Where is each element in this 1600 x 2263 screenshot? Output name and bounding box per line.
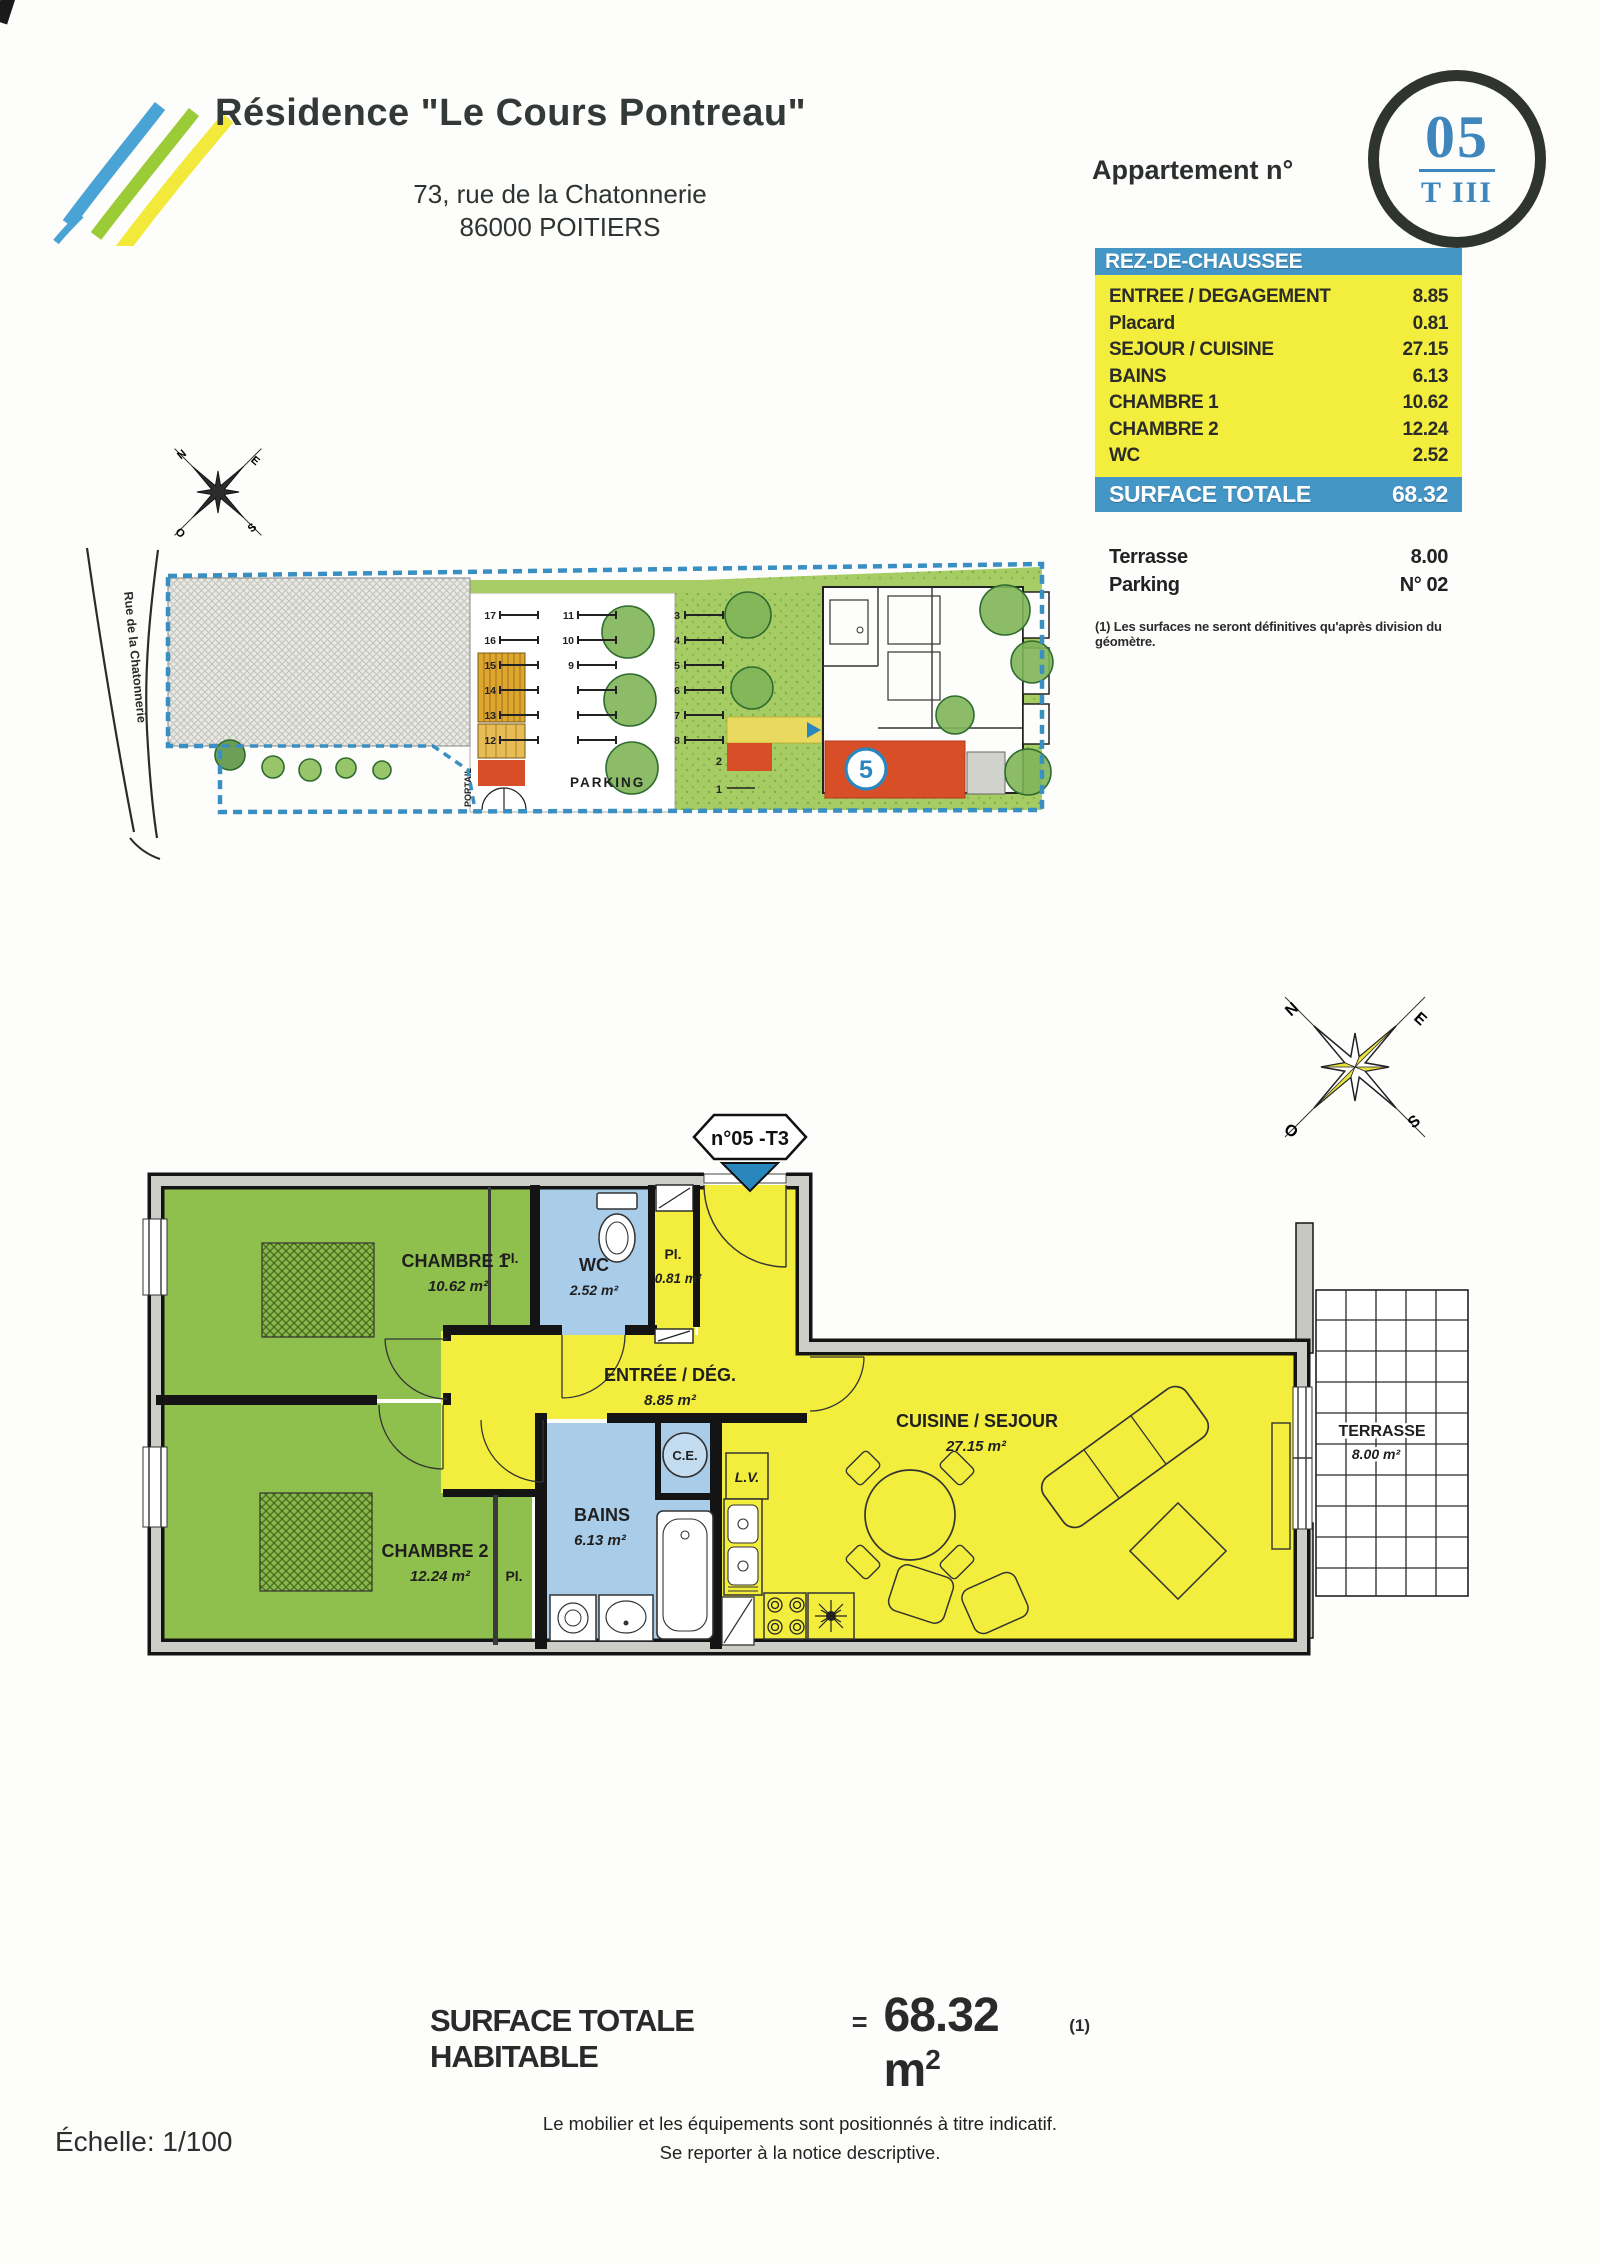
floor-header: REZ-DE-CHAUSSEE xyxy=(1095,248,1462,275)
row-label: WC xyxy=(1109,445,1140,467)
unit5-marker: 5 xyxy=(846,749,886,789)
parking-number: 13 xyxy=(484,710,496,722)
developer-logo xyxy=(48,46,268,246)
row-value: 12.24 xyxy=(1402,419,1448,441)
unit5-number: 5 xyxy=(859,756,873,784)
bed-icon-chambre2 xyxy=(260,1493,372,1591)
summary-equals: = xyxy=(852,2007,868,2038)
row-label: Placard xyxy=(1109,313,1175,335)
table-row: Terrasse8.00 xyxy=(1109,543,1448,571)
parking-label: PARKING xyxy=(570,775,645,790)
scan-artifact xyxy=(0,0,16,24)
annex-rows: Terrasse8.00 ParkingN° 02 xyxy=(1095,543,1462,599)
unit-tag-text: n°05 -T3 xyxy=(711,1128,789,1150)
row-value: 2.52 xyxy=(1413,445,1448,467)
parking-number: 5 xyxy=(674,660,680,672)
label-dishwasher: L.V. xyxy=(735,1469,759,1485)
room-entree-pocket xyxy=(441,1331,540,1493)
street: Rue de la Chatonnerie xyxy=(87,548,160,859)
parking-number: 4 xyxy=(674,635,680,647)
parking-number: 6 xyxy=(674,685,680,697)
parking-number: 14 xyxy=(484,685,496,697)
gate-parking-number: 2 xyxy=(716,756,722,768)
surface-table-body: ENTREE / DEGAGEMENT8.85 Placard0.81 SEJO… xyxy=(1095,275,1462,477)
compass-e: E xyxy=(1410,1009,1430,1029)
label-entree: ENTRÉE / DÉG. xyxy=(604,1364,736,1385)
row-value: 10.62 xyxy=(1402,392,1448,414)
compass-e: E xyxy=(248,454,261,468)
apartment-type: T III xyxy=(1421,176,1493,210)
table-row: ParkingN° 02 xyxy=(1109,571,1448,599)
row-value: N° 02 xyxy=(1400,574,1448,597)
terrace-unit2-west xyxy=(478,760,525,786)
parking-number: 7 xyxy=(674,710,680,722)
row-label: CHAMBRE 1 xyxy=(1109,392,1218,414)
table-row: Placard0.81 xyxy=(1109,311,1448,338)
terrace-unit2 xyxy=(727,743,772,771)
bathtub-icon xyxy=(657,1511,713,1639)
dining-table-icon xyxy=(845,1450,976,1581)
badge-divider xyxy=(1419,169,1495,172)
parking-number: 12 xyxy=(484,735,496,747)
area-bains: 6.13 m² xyxy=(574,1532,627,1549)
area-entree: 8.85 m² xyxy=(644,1392,697,1409)
area-wc: 2.52 m² xyxy=(569,1282,619,1298)
surface-table: REZ-DE-CHAUSSEE ENTREE / DEGAGEMENT8.85 … xyxy=(1095,248,1462,649)
residence-title: Résidence "Le Cours Pontreau" xyxy=(215,92,806,135)
table-row: BAINS6.13 xyxy=(1109,364,1448,391)
label-chambre2: CHAMBRE 2 xyxy=(381,1541,488,1561)
summary-value-number: 68.32 m xyxy=(884,1989,999,2097)
footnotes: Le mobilier et les équipements sont posi… xyxy=(0,2110,1600,2167)
surfaces-note: (1) Les surfaces ne seront définitives q… xyxy=(1095,619,1462,649)
compass-n: N xyxy=(1282,1000,1302,1020)
compass-s: S xyxy=(246,521,259,535)
compass-o: O xyxy=(173,526,188,541)
total-value: 68.32 xyxy=(1392,481,1448,508)
gate-parking-number: 1 xyxy=(716,784,722,796)
surface-total-row: SURFACE TOTALE 68.32 xyxy=(1095,477,1462,512)
room-entree-corridor xyxy=(698,1185,806,1351)
footnote-line1: Le mobilier et les équipements sont posi… xyxy=(0,2110,1600,2139)
label-placard-chambre1: Pl. xyxy=(501,1250,518,1266)
parking-number: 3 xyxy=(674,610,680,622)
area-chambre1: 10.62 m² xyxy=(428,1278,489,1295)
row-label: CHAMBRE 2 xyxy=(1109,419,1218,441)
scale-label: Échelle: 1/100 xyxy=(55,2126,232,2158)
street-name: Rue de la Chatonnerie xyxy=(121,591,149,724)
kitchen-cabinet-door xyxy=(722,1597,754,1645)
row-value: 8.00 xyxy=(1411,546,1448,569)
area-terrasse: 8.00 m² xyxy=(1352,1446,1401,1462)
table-row: WC2.52 xyxy=(1109,443,1448,470)
gas-burner-icon xyxy=(808,1593,854,1639)
kitchen-sink-icon xyxy=(724,1499,762,1595)
existing-building-block xyxy=(168,578,470,746)
area-sejour: 27.15 m² xyxy=(945,1438,1007,1455)
total-label: SURFACE TOTALE xyxy=(1109,481,1311,508)
site-plan: 5 17 16 15 14 13 12 11 10 xyxy=(30,300,1090,860)
stove-icon xyxy=(764,1593,806,1639)
total-surface-line: SURFACE TOTALE HABITABLE = 68.32 m2 (1) xyxy=(430,1988,1090,2098)
compass-s: S xyxy=(1405,1112,1424,1132)
table-row: CHAMBRE 212.24 xyxy=(1109,417,1448,444)
apartment-label: Appartement n° xyxy=(1092,155,1293,186)
row-label: BAINS xyxy=(1109,366,1166,388)
summary-footnote-ref: (1) xyxy=(1069,2016,1090,2036)
summary-value-sup: 2 xyxy=(925,2044,940,2075)
apartment-number-badge: 05 T III xyxy=(1368,70,1546,248)
parking-number: 17 xyxy=(484,610,496,622)
label-terrasse: TERRASSE xyxy=(1338,1423,1425,1440)
apartment-number: 05 xyxy=(1425,109,1489,166)
parking-number: 16 xyxy=(484,635,496,647)
label-placard: Pl. xyxy=(664,1246,681,1262)
row-label: Terrasse xyxy=(1109,546,1188,569)
compass-n: N xyxy=(175,448,189,462)
label-sejour: CUISINE / SEJOUR xyxy=(896,1411,1058,1431)
compass-rose-icon: N E S O xyxy=(1281,997,1430,1142)
address-line2: 86000 POITIERS xyxy=(330,211,790,244)
washbasin-icon xyxy=(599,1595,653,1641)
parking-number: 11 xyxy=(563,610,574,622)
summary-value: 68.32 m2 xyxy=(884,1988,1054,2098)
parking-number: 8 xyxy=(674,735,680,747)
label-chambre1: CHAMBRE 1 xyxy=(401,1251,508,1271)
label-wc: WC xyxy=(579,1255,609,1275)
row-value: 0.81 xyxy=(1413,313,1448,335)
floor-plan: CHAMBRE 1 10.62 m² Pl. CHAMBRE 2 12.24 m… xyxy=(110,995,1500,1695)
area-chambre2: 12.24 m² xyxy=(410,1568,471,1585)
label-bains: BAINS xyxy=(574,1505,630,1525)
parking-number: 9 xyxy=(568,660,574,672)
window-chambre1 xyxy=(143,1219,167,1295)
parking-number: 10 xyxy=(562,635,574,647)
residence-address: 73, rue de la Chatonnerie 86000 POITIERS xyxy=(330,178,790,243)
table-row: SEJOUR / CUISINE27.15 xyxy=(1109,337,1448,364)
terrace-gray-site xyxy=(967,752,1005,794)
area-placard: 0.81 m² xyxy=(655,1271,702,1286)
parking-number: 15 xyxy=(484,660,496,672)
label-placard-chambre2: Pl. xyxy=(505,1568,522,1584)
washing-machine-icon xyxy=(550,1595,596,1641)
window-chambre2 xyxy=(143,1447,167,1527)
address-line1: 73, rue de la Chatonnerie xyxy=(330,178,790,211)
terrace-wall-stub-top xyxy=(1296,1223,1313,1353)
row-value: 8.85 xyxy=(1413,286,1448,308)
row-label: Parking xyxy=(1109,574,1180,597)
compass-rose-icon: N E S O xyxy=(173,448,262,541)
label-water-heater: C.E. xyxy=(672,1448,697,1463)
row-value: 27.15 xyxy=(1402,339,1448,361)
row-label: SEJOUR / CUISINE xyxy=(1109,339,1274,361)
window-sejour-terrasse xyxy=(1293,1387,1312,1529)
bed-icon-chambre1 xyxy=(262,1243,374,1337)
summary-label: SURFACE TOTALE HABITABLE xyxy=(430,2003,836,2075)
table-row: CHAMBRE 110.62 xyxy=(1109,390,1448,417)
table-row: ENTREE / DEGAGEMENT8.85 xyxy=(1109,284,1448,311)
plan-sheet: Résidence "Le Cours Pontreau" 73, rue de… xyxy=(0,0,1600,2263)
footnote-line2: Se reporter à la notice descriptive. xyxy=(0,2139,1600,2168)
terrasse xyxy=(1316,1290,1468,1596)
row-label: ENTREE / DEGAGEMENT xyxy=(1109,286,1330,308)
toilet-icon xyxy=(597,1193,637,1262)
row-value: 6.13 xyxy=(1413,366,1448,388)
